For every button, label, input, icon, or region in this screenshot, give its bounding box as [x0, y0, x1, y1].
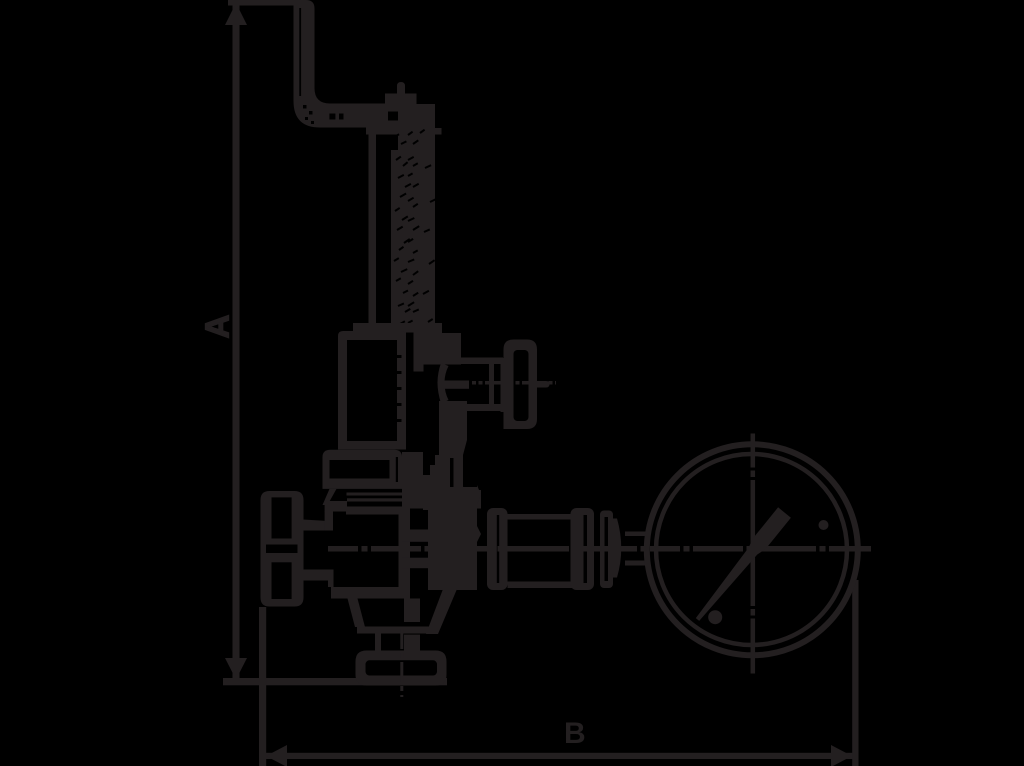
svg-text:A: A — [199, 315, 236, 339]
svg-text:B: B — [564, 717, 586, 750]
